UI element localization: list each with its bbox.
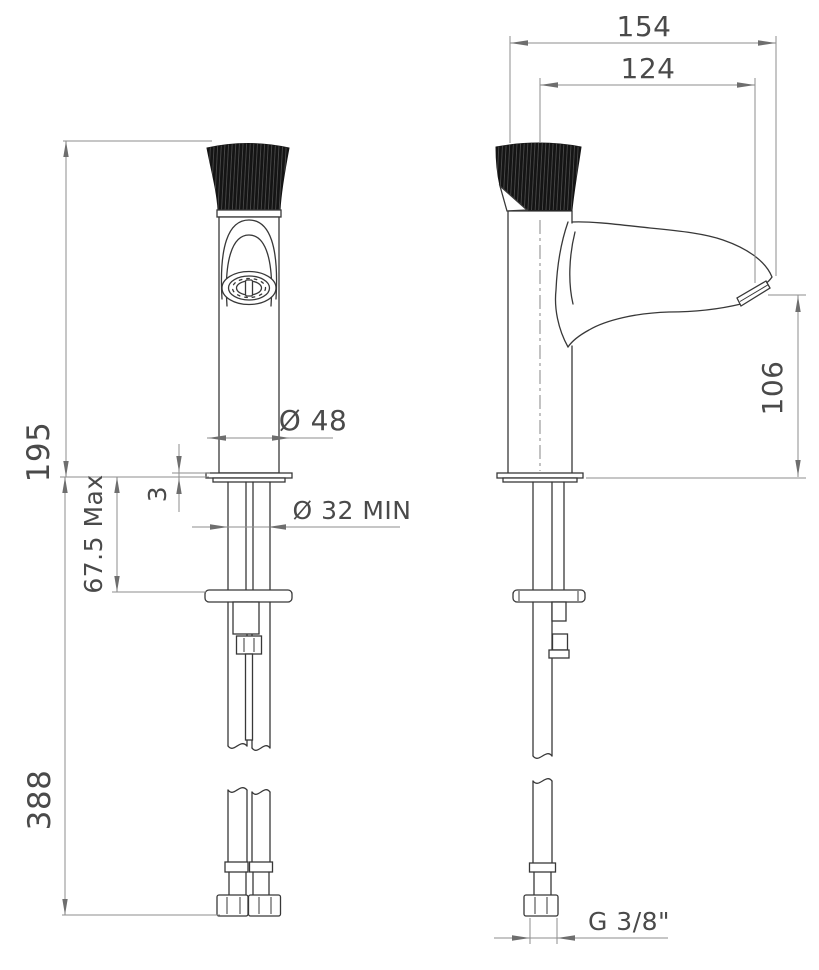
dim-connection-thread: G 3/8" <box>494 907 670 944</box>
front-view <box>205 144 292 917</box>
handle-knob-side <box>496 143 581 211</box>
dim-deck-thickness: 3 <box>143 444 210 512</box>
aerator-side <box>737 281 770 306</box>
dim-label-overall-height: 195 <box>21 422 57 483</box>
hex-nut-side <box>524 895 558 916</box>
supply-hoses-lower-front <box>225 788 273 895</box>
base-flange-front <box>206 473 292 482</box>
dim-outlet-height: 106 <box>586 295 806 478</box>
side-view <box>496 143 772 916</box>
dim-label-base-diameter: Ø 48 <box>279 404 348 437</box>
faucet-technical-drawing: 195 388 67.5 Max 3 Ø 48 Ø 32 MIN <box>0 0 819 970</box>
base-flange-side <box>497 473 583 482</box>
dim-label-outlet-reach: 124 <box>621 52 676 85</box>
dim-hose-length: 388 <box>22 477 220 915</box>
dim-label-connection-thread: G 3/8" <box>588 907 670 936</box>
shank-front <box>228 482 270 590</box>
aerator-front <box>222 272 276 305</box>
dim-label-deck-thickness: 3 <box>143 486 172 502</box>
shank-side <box>533 482 564 590</box>
dim-label-max-deck-thickness: 67.5 Max <box>79 474 108 593</box>
knob-base-ring-front <box>217 210 281 217</box>
handle-knob-front <box>207 144 289 211</box>
dim-label-min-hole-diameter: Ø 32 MIN <box>292 496 411 525</box>
supply-hose-lower-side <box>530 779 556 895</box>
supply-hose-upper-side <box>533 602 552 758</box>
mounting-washer-front <box>205 590 292 602</box>
mounting-washer-side <box>513 590 585 602</box>
dim-label-overall-reach: 154 <box>617 10 672 43</box>
technical-drawing-page: 195 388 67.5 Max 3 Ø 48 Ø 32 MIN <box>0 0 819 970</box>
dim-label-hose-length: 388 <box>22 770 58 831</box>
hex-nuts-front <box>217 895 281 916</box>
mounting-stud-front <box>233 602 262 740</box>
dim-overall-height: 195 <box>21 141 212 482</box>
faucet-body-front <box>219 217 279 473</box>
dim-min-hole-diameter: Ø 32 MIN <box>192 496 412 530</box>
spout-side <box>556 222 773 347</box>
dim-label-outlet-height: 106 <box>756 361 789 416</box>
